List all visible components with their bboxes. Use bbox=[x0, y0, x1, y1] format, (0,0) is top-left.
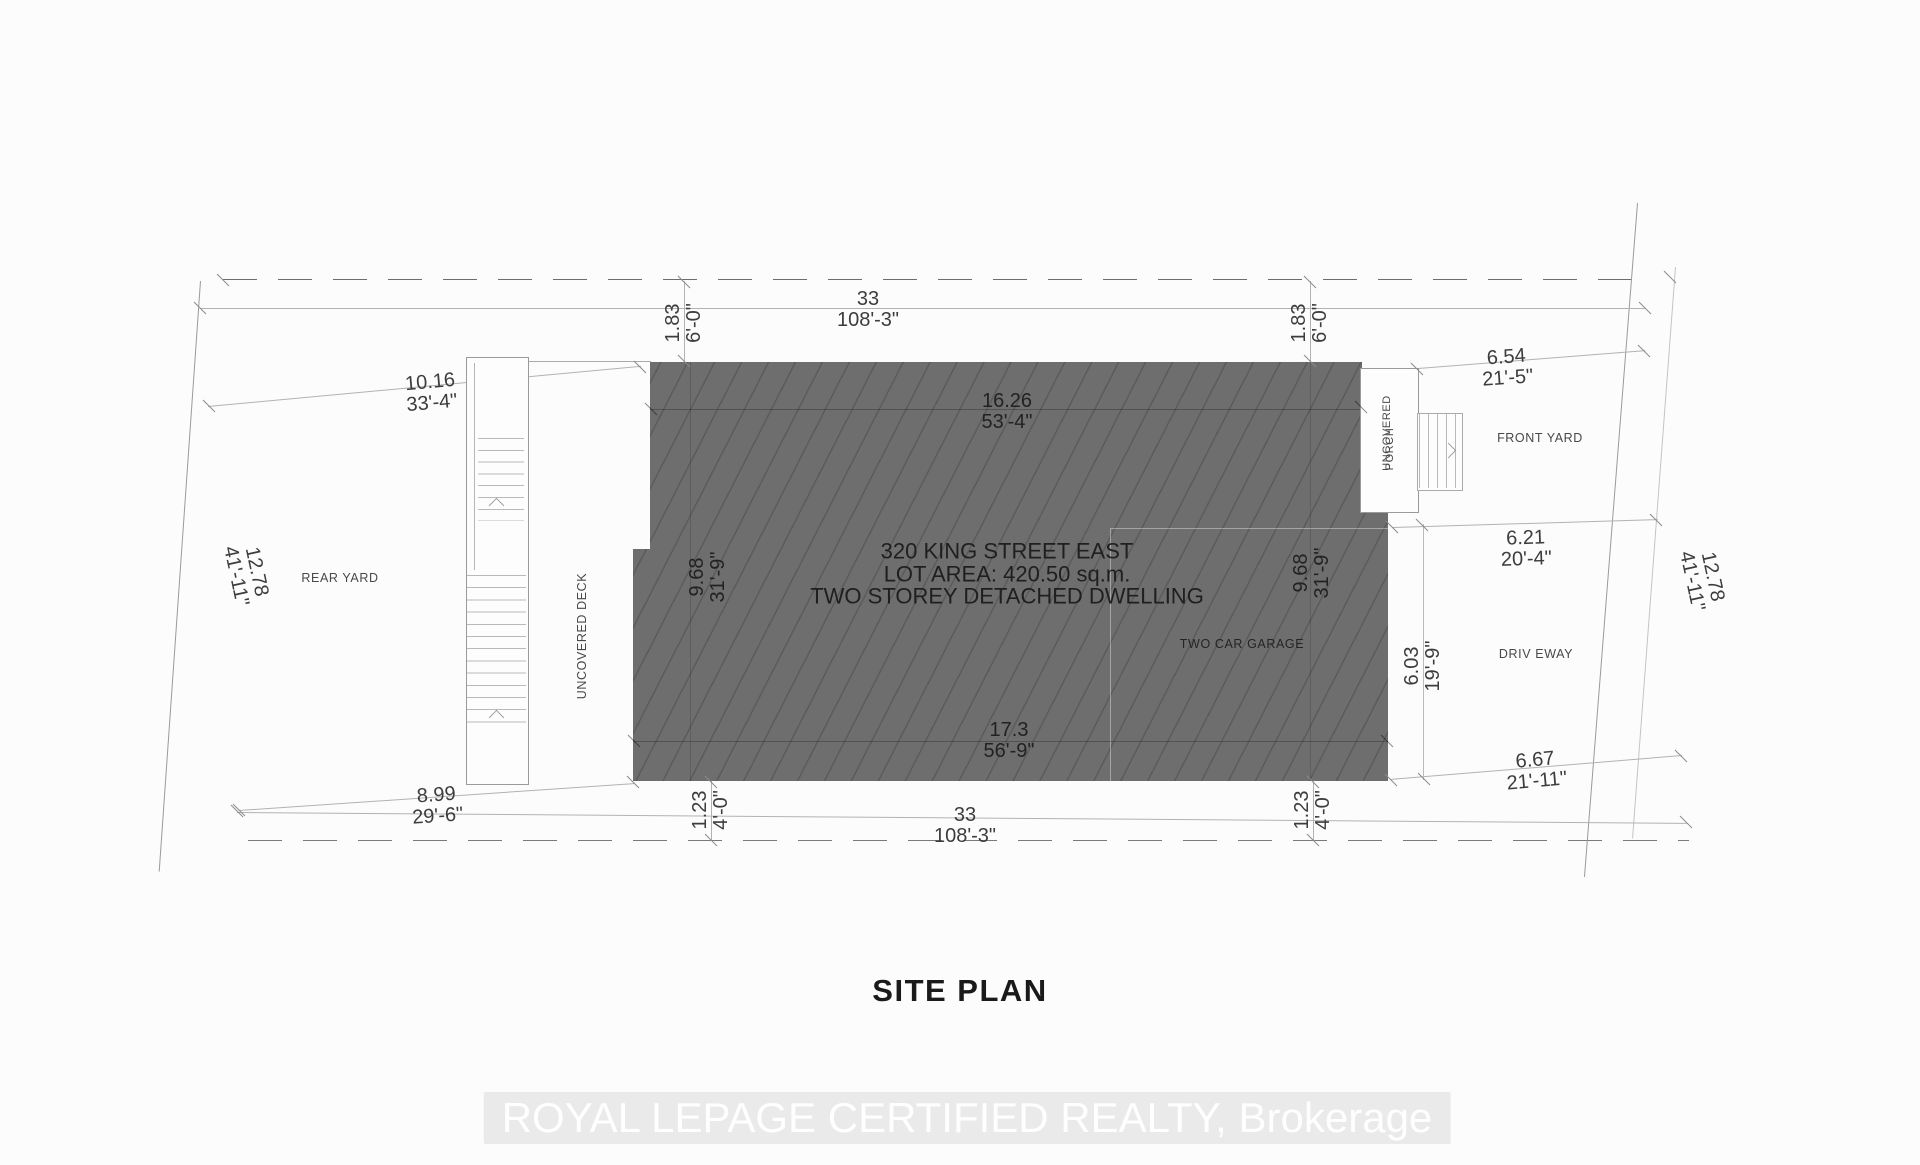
dim-side-setback-right: 1.23 4'-0" bbox=[1292, 790, 1334, 830]
dim-imperial: 31'-9" bbox=[1312, 548, 1333, 599]
porch-label-porch: PORCH bbox=[1384, 428, 1396, 471]
driveway-label: DRIV EWAY bbox=[1499, 647, 1573, 661]
dim-imperial: 6'-0" bbox=[684, 303, 705, 343]
dim-lot-width-top: 33 108'-3" bbox=[837, 289, 899, 331]
dim-front-setback-right: 1.83 6'-0" bbox=[1289, 303, 1331, 343]
dim-metric: 1.83 bbox=[663, 303, 684, 343]
dim-metric: 16.26 bbox=[982, 391, 1033, 412]
lot-line-right-outer bbox=[1632, 267, 1676, 838]
dim-tick bbox=[1418, 773, 1431, 786]
dim-metric: 9.68 bbox=[1291, 548, 1312, 599]
garage-label: TWO CAR GARAGE bbox=[1180, 637, 1304, 651]
dim-front-yard-top: 6.54 21'-5" bbox=[1480, 345, 1534, 390]
dim-metric: 33 bbox=[934, 805, 996, 826]
dim-line-top-width bbox=[200, 308, 1645, 309]
building-address: 320 KING STREET EAST bbox=[810, 540, 1204, 563]
dim-metric: 33 bbox=[837, 289, 899, 310]
dim-imperial: 6'-0" bbox=[1310, 303, 1331, 343]
dim-front-setback-left: 1.83 6'-0" bbox=[663, 303, 705, 343]
dim-imperial: 21'-5" bbox=[1482, 366, 1534, 391]
dim-imperial: 31'-9" bbox=[708, 552, 729, 603]
brokerage-watermark: ROYAL LEPAGE CERTIFIED REALTY, Brokerage bbox=[484, 1092, 1451, 1144]
dim-imperial: 53'-4" bbox=[982, 412, 1033, 433]
building-lot-area: LOT AREA: 420.50 sq.m. bbox=[810, 563, 1204, 586]
dim-metric: 1.23 bbox=[690, 790, 711, 830]
dim-lot-depth-left: 12.78 41'-11" bbox=[219, 540, 273, 608]
rear-yard-label: REAR YARD bbox=[301, 571, 378, 585]
dim-metric: 9.68 bbox=[687, 552, 708, 603]
dim-metric: 17.3 bbox=[984, 720, 1035, 741]
dim-house-width-bottom: 17.3 56'-9" bbox=[984, 720, 1035, 762]
building-description: TWO STOREY DETACHED DWELLING bbox=[810, 585, 1204, 608]
dim-imperial: 108'-3" bbox=[837, 310, 899, 331]
site-plan-sheet: 33 108'-3" 33 108'-3" 12.78 41'-11" 12.7… bbox=[0, 0, 1920, 1165]
dim-metric: 1.23 bbox=[1292, 790, 1313, 830]
dim-imperial: 21'-11" bbox=[1506, 768, 1568, 794]
dim-lot-width-bottom: 33 108'-3" bbox=[934, 805, 996, 847]
dim-imperial: 4'-0" bbox=[1313, 790, 1334, 830]
lot-line-top bbox=[223, 279, 1643, 280]
dim-imperial: 56'-9" bbox=[984, 741, 1035, 762]
dim-imperial: 19'-9" bbox=[1423, 641, 1444, 692]
dim-imperial: 20'-4" bbox=[1501, 548, 1553, 571]
dim-metric: 1.83 bbox=[1289, 303, 1310, 343]
dim-front-yard-mid: 6.21 20'-4" bbox=[1500, 527, 1552, 571]
deck-stairs-lower bbox=[467, 575, 526, 723]
dim-imperial: 108'-3" bbox=[934, 826, 996, 847]
dim-metric: 6.03 bbox=[1402, 641, 1423, 692]
lot-line-left bbox=[159, 281, 201, 872]
dim-rear-yard-bottom: 8.99 29'-6" bbox=[410, 783, 464, 828]
dim-imperial: 29'-6" bbox=[412, 804, 464, 829]
dim-side-setback-left: 1.23 4'-0" bbox=[690, 790, 732, 830]
dim-lot-depth-right: 12.78 41'-11" bbox=[1675, 545, 1729, 613]
front-yard-label: FRONT YARD bbox=[1497, 431, 1583, 445]
dim-house-width-top: 16.26 53'-4" bbox=[982, 391, 1033, 433]
deck-inner-line bbox=[474, 363, 475, 570]
lot-line-right bbox=[1584, 203, 1638, 877]
dim-imperial: 4'-0" bbox=[711, 790, 732, 830]
dim-tick bbox=[217, 274, 230, 287]
dim-driveway-bottom: 6.67 21'-11" bbox=[1504, 747, 1568, 794]
building-text-block: 320 KING STREET EAST LOT AREA: 420.50 sq… bbox=[810, 540, 1204, 608]
dim-house-depth-right: 9.68 31'-9" bbox=[1291, 548, 1333, 599]
dim-rear-deck-width: 10.16 33'-4" bbox=[404, 370, 458, 416]
deck-label: UNCOVERED DECK bbox=[575, 573, 589, 699]
dim-imperial: 33'-4" bbox=[406, 391, 459, 416]
dim-house-depth-left: 9.68 31'-9" bbox=[687, 552, 729, 603]
dim-garage-to-lot: 6.03 19'-9" bbox=[1402, 641, 1444, 692]
page-title: SITE PLAN bbox=[872, 973, 1047, 1009]
